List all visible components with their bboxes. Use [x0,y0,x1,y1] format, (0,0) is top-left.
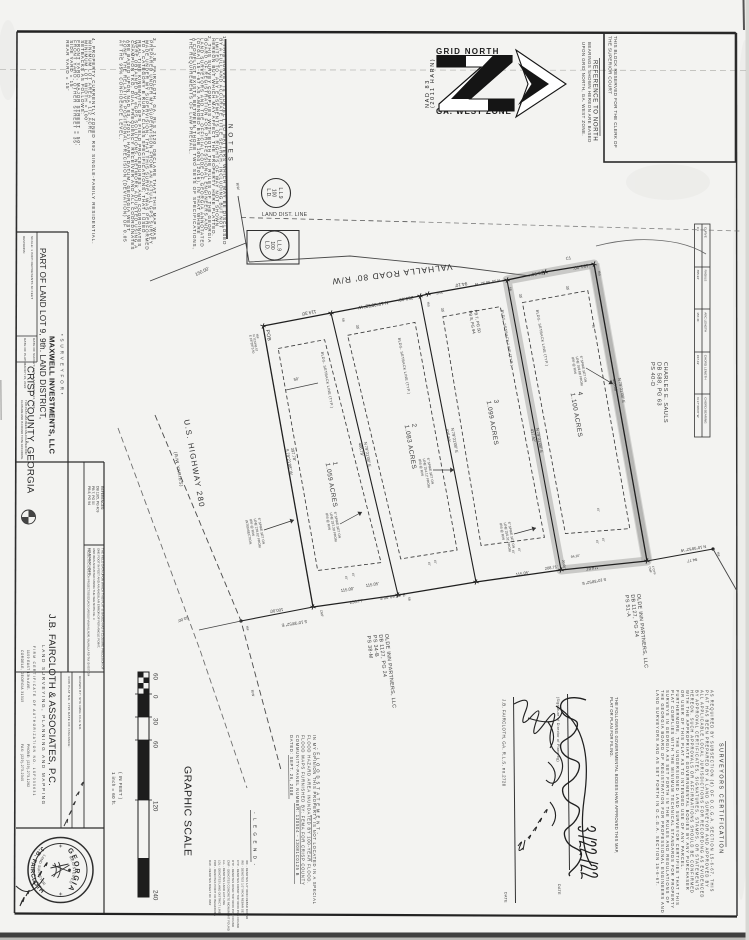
svg-text:L.L.9: L.L.9 [276,240,282,251]
svg-text:SURVEYORS CERTIFICATION: SURVEYORS CERTIFICATION [718,743,724,855]
svg-text:• S U R V E Y F O R •: • S U R V E Y F O R • [60,334,65,395]
svg-text:120: 120 [152,801,159,812]
svg-text:30: 30 [152,718,159,725]
svg-text:60: 60 [152,741,159,748]
svg-text:ARC LENGTH: ARC LENGTH [704,312,708,332]
svg-text:C1: C1 [696,227,700,231]
svg-text:+: + [57,844,63,848]
svg-text:157.19': 157.19' [696,355,700,365]
svg-text:CHORD BEARING: CHORD BEARING [704,397,708,424]
svg-text:240: 240 [152,890,159,901]
svg-text:+: + [57,892,63,896]
svg-text:N 17°39′03″ W: N 17°39′03″ W [696,397,700,417]
svg-text:SB: SB [508,286,513,291]
svg-text:L.D.: L.D. [264,241,270,250]
svg-text:DATE: DATE [557,884,561,895]
svg-text:- L E G E N D -: - L E G E N D - [253,812,258,867]
svg-text:1. THIS SURVEY IS SUBJECT TO M: 1. THIS SURVEY IS SUBJECT TO MATTERS WHI… [211,36,227,245]
svg-text:J.B. FAIRCLOTH & ASSOCIATES, P: J.B. FAIRCLOTH & ASSOCIATES, P.C. [47,614,58,786]
svg-text:3. I, J.B. FAIRCLOTH, GA. RLS: 3. I, J.B. FAIRCLOTH, GA. RLS 2120, DECL… [119,38,157,251]
svg-text:FAX: (229)-273-2340: FAX: (229)-273-2340 [20,744,24,781]
svg-text:AS REQUIRED BY SUBSECTION (d): AS REQUIRED BY SUBSECTION (d) OF O.C.G.A… [655,690,714,914]
svg-text:GRAPHIC SCALE: GRAPHIC SCALE [182,766,194,856]
svg-text:( IN FEET ): ( IN FEET ) [118,772,123,800]
svg-text:FIRM CERTIFICATE OF AUTHORIZAT: FIRM CERTIFICATE OF AUTHORIZATION NO. LS… [32,646,36,797]
svg-text:SB: SB [407,596,412,601]
svg-text:1109 EAST 13th AVE.: 1109 EAST 13th AVE. [26,650,30,690]
svg-text:BEARINGS SHOWN HEREON ARE BASE: BEARINGS SHOWN HEREON ARE BASEDUPON GRID… [581,42,592,143]
svg-text:L.D.: L.D. [265,188,271,197]
svg-text:CRISP COUNTY, GEORGIA: CRISP COUNTY, GEORGIA [25,366,36,494]
svg-text:4438 PLAT NO. 1795 DATE: 4438 PLAT NO. 1795 DATE OF ISSUANCE: [67,676,71,748]
svg-text:355.94': 355.94' [696,270,700,280]
svg-text:0: 0 [152,695,159,699]
svg-text:LAND SURVEYING, PLANNING AND M: LAND SURVEYING, PLANNING AND MAPPING [41,645,46,806]
svg-text:DATE: DATE [504,892,508,903]
svg-text:J.B. FAIRCLOTH, GA. R.L.S. no.: J.B. FAIRCLOTH, GA. R.L.S. no.2720 [502,699,507,787]
svg-text:IRF: IRF [716,551,721,557]
svg-text:RADIUS: RADIUS [704,270,708,282]
svg-text:IRF: IRF [245,625,250,631]
svg-text:LAND DIST. LINE: LAND DIST. LINE [262,212,308,218]
svg-text:PART OF LAND LOT 9, 9th. LAND: PART OF LAND LOT 9, 9th. LAND DISTRICT, [38,248,47,419]
svg-text:DRAWN BY: SHK DWG FILE: DRAWN BY: SHK DWG FILE NO. [78,676,82,730]
svg-text:REVISIONS:: REVISIONS: [22,236,26,254]
svg-text:PROJECTS:C:\CARLSON PROJECTS\2: PROJECTS:C:\CARLSON PROJECTS\2022\JACK G… [87,548,91,677]
svg-text:PHONE: (229)-273-1282: PHONE: (229)-273-1282 [26,744,30,787]
svg-text:GRID NORTH: GRID NORTH [436,47,500,56]
svg-text:CHORD LENGTH: CHORD LENGTH [704,355,708,380]
svg-text:1 inch = 60 ft.: 1 inch = 60 ft. [111,772,116,806]
svg-text:SCALE: 1 INCH REPRESENTS 60 FE: SCALE: 1 INCH REPRESENTS 60 FEET [30,236,34,299]
svg-text:SB: SB [341,317,346,322]
svg-text:MAXWELL INVESTMENTS, LLC: MAXWELL INVESTMENTS, LLC [48,336,57,454]
svg-text:CURVE: CURVE [704,227,708,238]
svg-text:60: 60 [152,673,159,680]
svg-text:L.L.9: L.L.9 [277,187,283,198]
svg-text:157.41': 157.41' [696,312,700,322]
svg-text:CORDELE, GEORGIA 31015: CORDELE, GEORGIA 31015 [20,650,24,703]
